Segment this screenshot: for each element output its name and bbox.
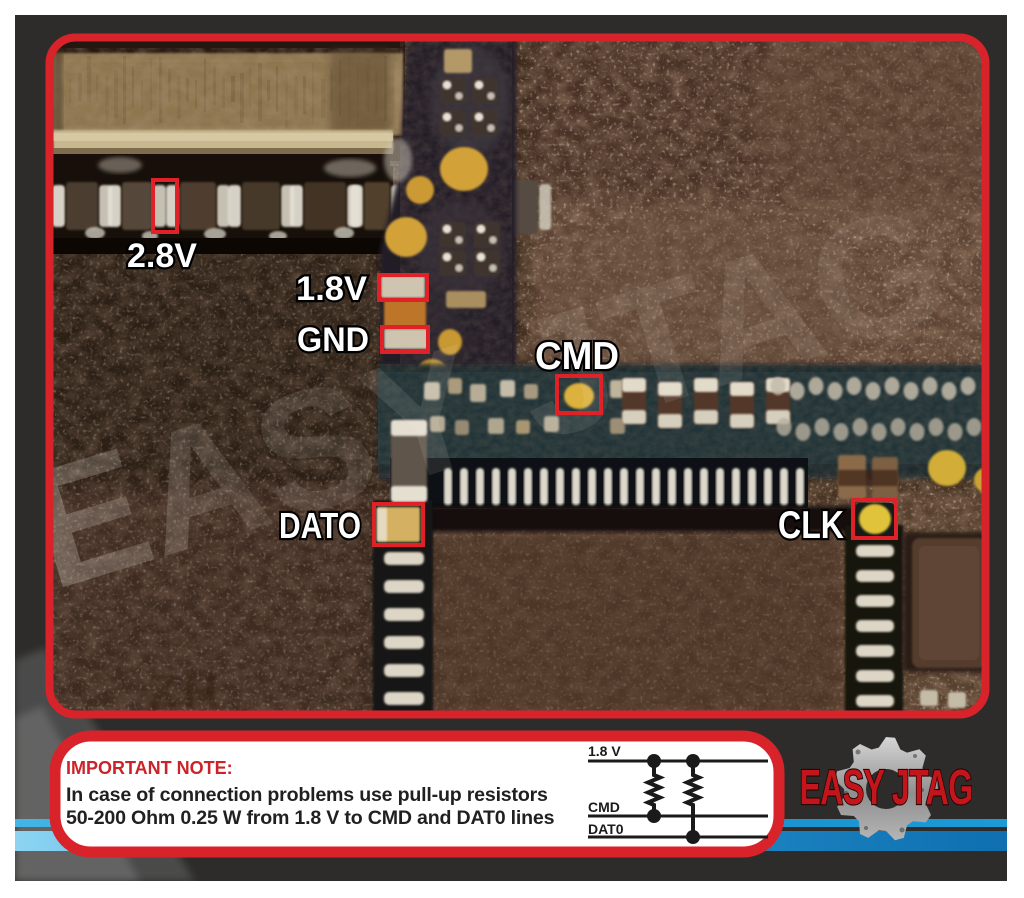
svg-text:CMD: CMD bbox=[588, 799, 620, 815]
svg-text:1.8 V: 1.8 V bbox=[588, 743, 621, 759]
svg-text:GND: GND bbox=[297, 321, 369, 359]
svg-text:50-200 Ohm 0.25 W from 1.8 V t: 50-200 Ohm 0.25 W from 1.8 V to CMD and … bbox=[66, 807, 555, 829]
svg-text:1.8V: 1.8V bbox=[296, 270, 367, 308]
svg-text:In case of connection problems: In case of connection problems use pull-… bbox=[66, 784, 548, 806]
svg-text:IMPORTANT NOTE:: IMPORTANT NOTE: bbox=[66, 758, 233, 778]
svg-text:2.8V: 2.8V bbox=[127, 237, 197, 275]
svg-text:EASY JTAG: EASY JTAG bbox=[799, 760, 972, 814]
svg-text:CLK: CLK bbox=[778, 504, 844, 547]
svg-text:DAT0: DAT0 bbox=[588, 821, 624, 837]
svg-text:CMD: CMD bbox=[535, 335, 619, 378]
svg-text:DATO: DATO bbox=[279, 505, 361, 546]
